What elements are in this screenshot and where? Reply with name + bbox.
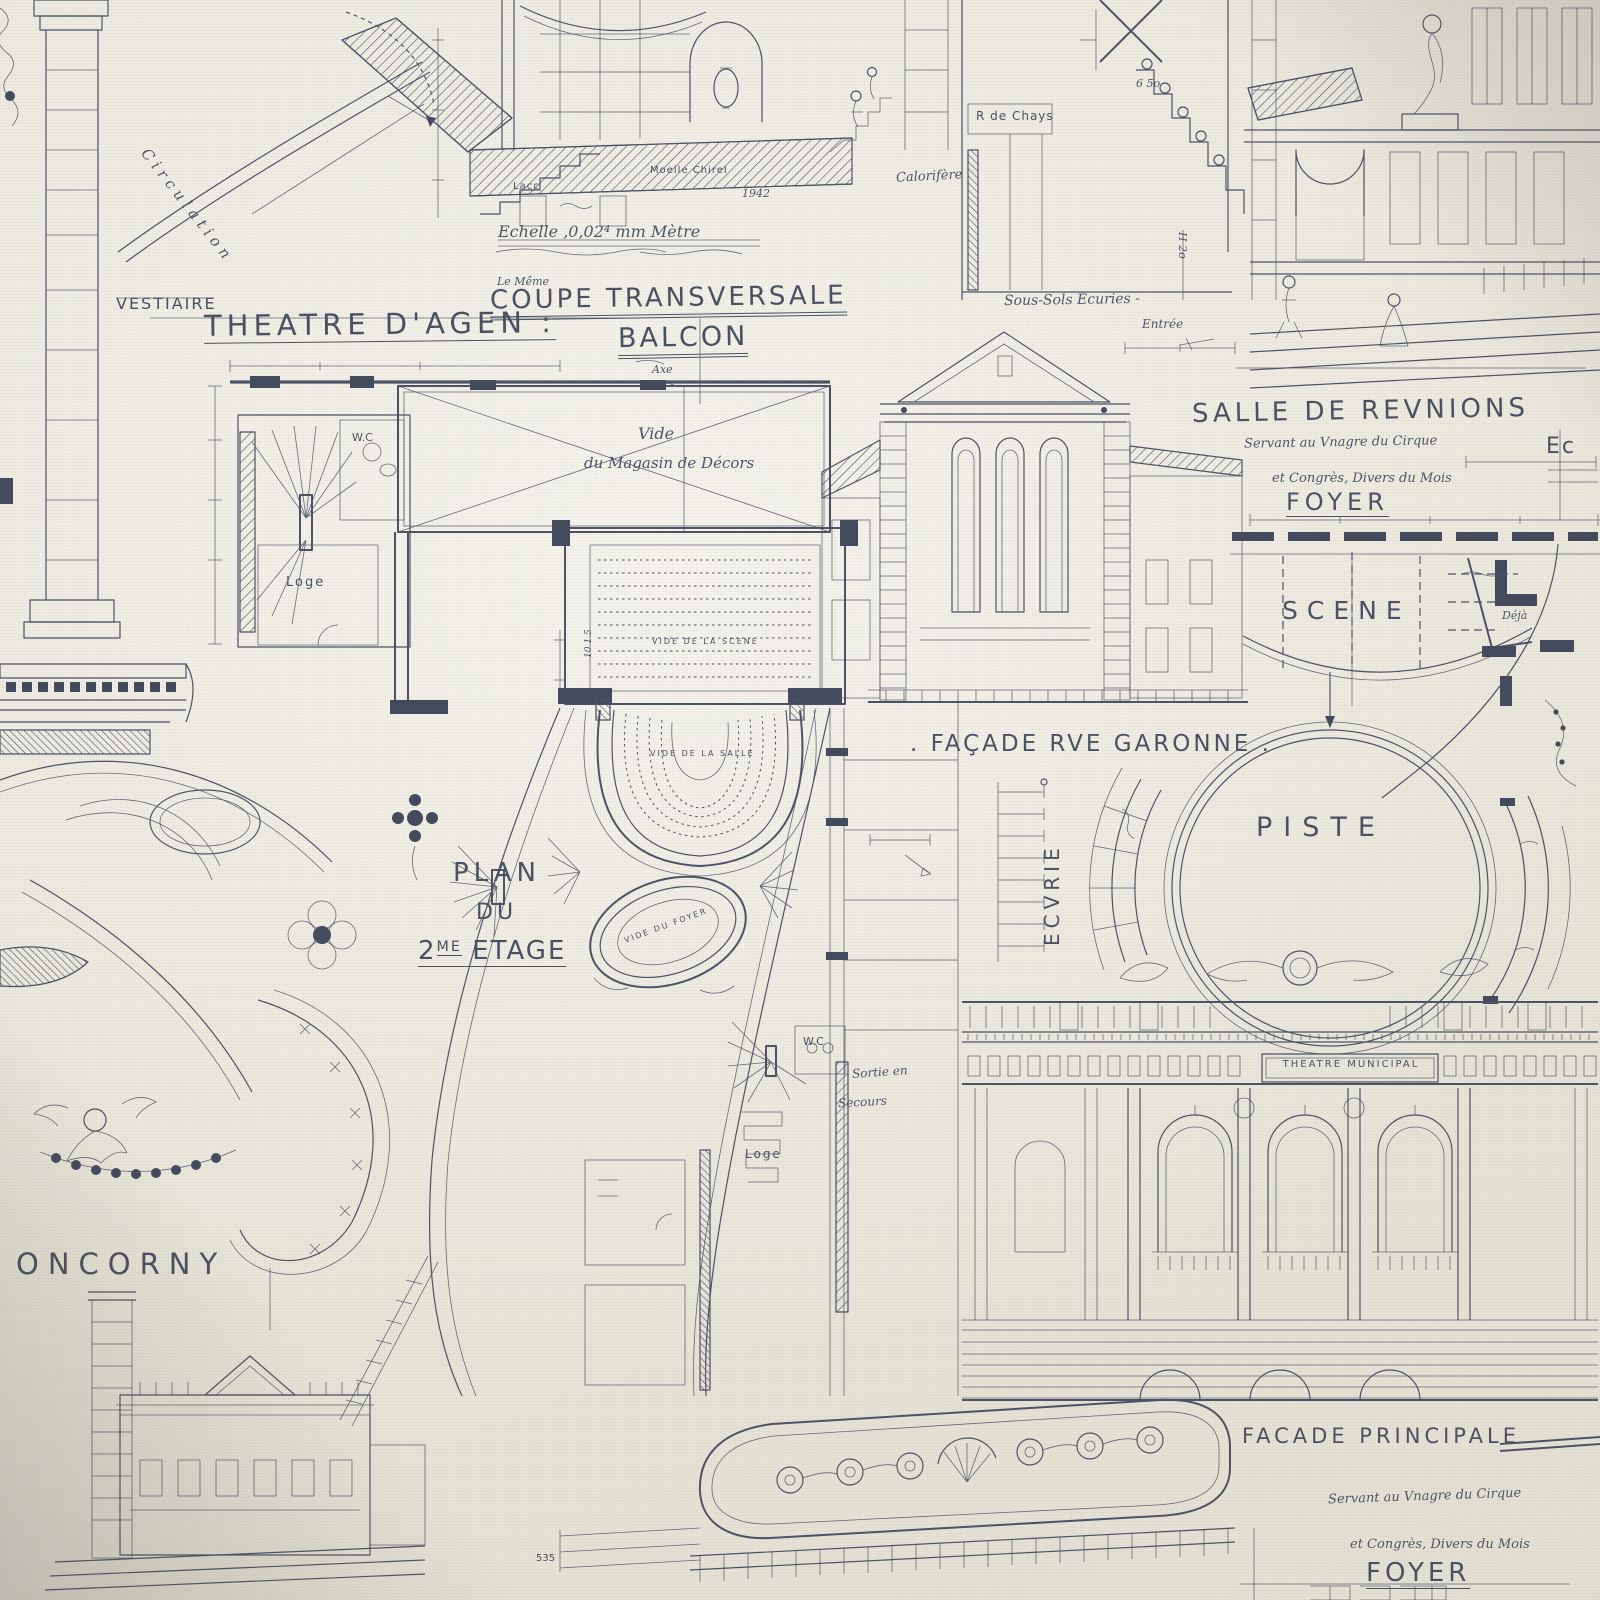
- ornamental-frieze-panel: [560, 1400, 1235, 1582]
- theatre-municipal-banner: THEATRE MUNICIPAL: [1268, 1060, 1434, 1070]
- vide-salle-label: VIDE DE LA SALLE: [650, 750, 755, 758]
- salle-reunions-title: SALLE DE REVNIONS: [1192, 395, 1529, 427]
- wc-lower-label: W.C: [803, 1036, 824, 1047]
- principale-handnote-2: et Congrès, Divers du Mois: [1350, 1538, 1530, 1551]
- echelle-note: Echelle ,0,02⁴ mm Mètre: [498, 224, 700, 240]
- etage-superscript: ME: [437, 939, 462, 956]
- balcon-title: BALCON: [618, 323, 749, 359]
- facade-garonne-title: . FAÇADE RVE GARONNE .: [910, 733, 1272, 756]
- piste-label: PISTE: [1256, 814, 1386, 841]
- blueprint-line-art: [0, 0, 1600, 1600]
- h2o-label: H 2o: [1177, 232, 1188, 259]
- magasin-label: du Magasin de Décors: [584, 456, 754, 471]
- vide-label: Vide: [638, 426, 674, 442]
- plan-title-line2: DU: [476, 902, 517, 924]
- plan-title-line1: PLAN: [453, 860, 541, 886]
- coupe-transversale-title: COUPE TRANSVERSALE: [490, 283, 847, 321]
- plan-title-line3: 2ME ETAGE: [418, 938, 566, 967]
- wc-upper-label: W.C: [352, 432, 373, 443]
- scene-plan-sketch: [1243, 544, 1558, 798]
- salle-handnote-1: Servant au Vnagre du Cirque: [1244, 434, 1438, 450]
- oncorny-building-elevation: [45, 1256, 438, 1590]
- dim-650-label: 6 5o: [1136, 78, 1160, 89]
- sous-sols-label: Sous-Sols Ecuries -: [1004, 292, 1140, 308]
- facade-principale-title: FACADE PRINCIPALE: [1242, 1426, 1520, 1447]
- scene-label: SCENE: [1282, 598, 1411, 623]
- ecvrie-label: ECVRIE: [1042, 843, 1062, 946]
- entree-label: Entrée: [1142, 318, 1183, 330]
- salle-handnote-2: et Congrès, Divers du Mois: [1272, 472, 1452, 485]
- lacc-label: Lacc: [513, 182, 540, 192]
- theatre-municipal-facade: [962, 951, 1598, 1400]
- ornate-facade-top-right: [1244, 0, 1600, 388]
- vestiaire-label: VESTIAIRE: [116, 296, 217, 312]
- axe-note: Axe: [652, 364, 673, 375]
- foyer-right-label: FOYER: [1286, 490, 1389, 517]
- piste-circus-plan: [998, 722, 1570, 1054]
- reunions-annotation-marks: [1180, 230, 1596, 468]
- etage-number: 2: [418, 936, 437, 966]
- year-label: 1942: [742, 188, 770, 199]
- sortie-line1: Sortie en: [852, 1064, 908, 1080]
- ec-partial-label: Ec: [1546, 436, 1576, 458]
- rocchays-label: R de Chays: [976, 110, 1054, 122]
- cornice-and-parterre-sketch: [0, 664, 390, 1274]
- dim-note-label: 10 1.5: [585, 629, 594, 658]
- garonne-pavilion-elevation: [822, 332, 1248, 702]
- vide-scene-label: VIDE DE LA SCENE: [652, 638, 759, 646]
- oncorny-label: ONCORNY: [16, 1250, 226, 1279]
- fabric-blueprint-collage: Circulation VESTIAIRE THEATRE D'AGEN : E…: [0, 0, 1600, 1600]
- theatre-floor-plan: [208, 360, 958, 1396]
- deja-note: Déjà: [1502, 610, 1527, 621]
- moelle-label: Moelle Chirel: [650, 166, 728, 176]
- loge-upper-label: Loge: [286, 576, 325, 589]
- etage-word: ETAGE: [472, 936, 566, 966]
- sortie-line2: Secours: [838, 1095, 887, 1110]
- calorifere-label: Calorifère: [896, 168, 963, 184]
- scale-535-label: 535: [536, 1554, 555, 1564]
- loge-lower-label: Loge: [745, 1148, 782, 1160]
- foyer-bottom-label: FOYER: [1366, 1560, 1470, 1589]
- column-elevation-drawing: [0, 0, 120, 638]
